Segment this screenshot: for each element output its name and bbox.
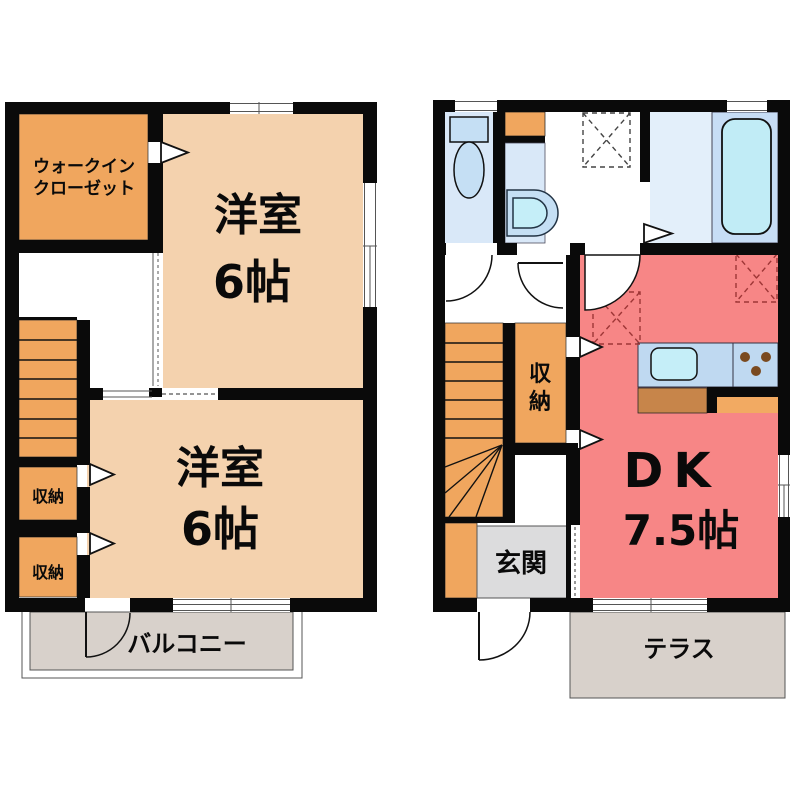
room-bedroom-lower bbox=[87, 400, 363, 598]
stairs-2f bbox=[19, 317, 77, 457]
floor-plan-canvas: ウォークイン クローゼット 洋室 6帖 洋室 6帖 収納 収納 バルコニー bbox=[0, 0, 800, 800]
window-top-2f bbox=[230, 102, 293, 114]
base-cabinet-brown bbox=[638, 388, 707, 413]
wall-segment bbox=[503, 323, 515, 523]
burner bbox=[761, 352, 771, 362]
washing-machine-space bbox=[583, 113, 630, 167]
floor-plan-drawing: ウォークイン クローゼット 洋室 6帖 洋室 6帖 収納 収納 バルコニー bbox=[0, 0, 800, 800]
storage-upper-label: 収納 bbox=[32, 487, 64, 506]
wall-segment bbox=[149, 388, 162, 397]
stairs-top-edge bbox=[19, 317, 77, 320]
wall-segment bbox=[148, 163, 163, 253]
washstand-cabinet bbox=[505, 112, 545, 136]
window-right-dk bbox=[778, 455, 790, 517]
entrance-door-arc bbox=[479, 612, 530, 660]
burner bbox=[740, 352, 750, 362]
window-bottom-2f bbox=[173, 598, 290, 612]
bedroom-upper-size: 6帖 bbox=[213, 255, 291, 309]
wall-segment bbox=[717, 387, 778, 397]
wall-segment bbox=[77, 487, 90, 533]
storage-1f-label-char2: 納 bbox=[529, 389, 551, 415]
wall-segment bbox=[570, 243, 585, 255]
wall-segment bbox=[566, 255, 580, 337]
wall-segment bbox=[148, 114, 163, 142]
walk-in-closet-label-line2: クローゼット bbox=[33, 178, 135, 199]
bedroom-lower-size: 6帖 bbox=[181, 502, 259, 556]
toilet-door-arc bbox=[446, 255, 492, 301]
wall-segment bbox=[15, 240, 163, 253]
wall-segment bbox=[5, 102, 19, 612]
entrance-label: 玄関 bbox=[495, 548, 547, 579]
wall-segment bbox=[363, 307, 377, 612]
wall-segment bbox=[77, 320, 90, 465]
window-top-bath bbox=[727, 100, 767, 112]
window-right-2f bbox=[363, 183, 377, 307]
balcony-label: バルコニー bbox=[127, 630, 247, 658]
window-top-toilet bbox=[455, 100, 497, 112]
wall-segment bbox=[707, 387, 717, 413]
wall-segment bbox=[445, 517, 515, 523]
wall-segment bbox=[218, 388, 363, 400]
wall-segment bbox=[363, 102, 377, 183]
storage-lower-label: 収納 bbox=[32, 563, 64, 582]
wall-segment bbox=[505, 136, 545, 143]
washroom-door-arc bbox=[518, 263, 563, 308]
wall-segment bbox=[5, 598, 85, 612]
burner bbox=[751, 366, 761, 376]
wall-segment bbox=[566, 525, 571, 598]
wall-segment bbox=[5, 102, 230, 114]
room-walk-in-closet bbox=[19, 114, 148, 240]
wall-segment bbox=[433, 598, 477, 612]
wall-segment bbox=[640, 243, 790, 255]
kitchen-sink-icon bbox=[651, 348, 697, 380]
kitchen-counter bbox=[638, 343, 778, 413]
base-cabinet-orange bbox=[717, 397, 778, 413]
bathtub-icon bbox=[722, 119, 771, 234]
room-bedroom-upper bbox=[163, 114, 363, 388]
stairs-1f bbox=[445, 323, 503, 517]
wall-segment bbox=[566, 357, 580, 430]
wall-segment bbox=[130, 598, 173, 612]
wall-segment bbox=[77, 555, 90, 598]
stairs-body bbox=[445, 323, 503, 517]
toilet-bowl bbox=[454, 142, 484, 198]
walk-in-closet-label-line1: ウォークイン bbox=[33, 157, 135, 177]
wall-segment bbox=[530, 598, 593, 612]
wall-segment bbox=[707, 598, 790, 612]
wall-segment bbox=[19, 457, 77, 467]
storage-1f-label-char1: 収 bbox=[529, 362, 552, 387]
floor-plan-2f: ウォークイン クローゼット 洋室 6帖 洋室 6帖 収納 収納 バルコニー bbox=[5, 102, 377, 678]
wall-segment bbox=[497, 243, 517, 255]
shoe-cabinet bbox=[445, 523, 477, 598]
washbasin-icon bbox=[507, 190, 558, 236]
bedroom-lower-name: 洋室 bbox=[176, 443, 264, 494]
wall-segment bbox=[778, 517, 790, 612]
wall-segment bbox=[566, 448, 580, 525]
toilet-tank bbox=[450, 117, 488, 142]
terrace-label: テラス bbox=[643, 635, 715, 663]
washbasin-inner bbox=[513, 198, 547, 228]
wall-segment bbox=[493, 112, 505, 243]
wall-segment bbox=[19, 520, 77, 537]
bedroom-upper-name: 洋室 bbox=[214, 190, 302, 241]
floor-plan-1f: 収 納 DK 7.5帖 玄関 テラス bbox=[433, 100, 790, 698]
wall-segment bbox=[290, 598, 377, 612]
window-bottom-dk bbox=[593, 598, 707, 612]
dk-name: DK bbox=[623, 443, 720, 499]
wall-segment bbox=[433, 100, 445, 612]
wall-segment bbox=[497, 100, 727, 112]
dk-size: 7.5帖 bbox=[623, 506, 739, 555]
wall-segment bbox=[640, 112, 650, 182]
wall-segment bbox=[433, 243, 446, 255]
wall-segment bbox=[778, 100, 790, 455]
